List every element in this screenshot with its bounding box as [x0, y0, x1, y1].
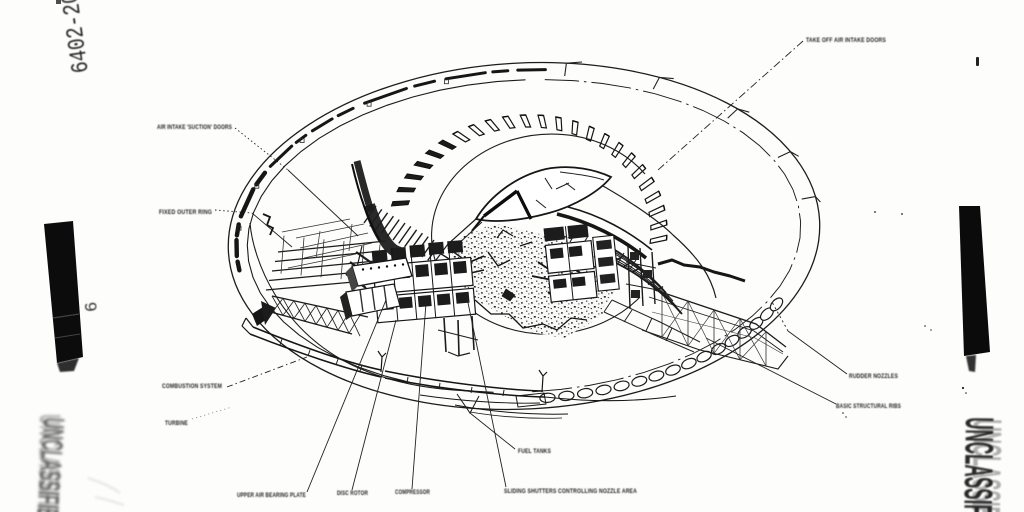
- svg-text:AIR INTAKE 'SUCTION' DOORS: AIR INTAKE 'SUCTION' DOORS: [157, 124, 232, 131]
- svg-text:DISC ROTOR: DISC ROTOR: [337, 490, 368, 497]
- svg-text:RUDDER NOZZLES: RUDDER NOZZLES: [849, 373, 898, 380]
- svg-text:COMBUSTION SYSTEM: COMBUSTION SYSTEM: [162, 383, 222, 390]
- svg-text:FUEL TANKS: FUEL TANKS: [518, 448, 551, 455]
- svg-text:BASIC STRUCTURAL RIBS: BASIC STRUCTURAL RIBS: [836, 403, 901, 410]
- svg-text:TAKE OFF AIR INTAKE DOORS: TAKE OFF AIR INTAKE DOORS: [806, 37, 886, 44]
- svg-text:COMPRESSOR: COMPRESSOR: [395, 489, 430, 496]
- svg-text:UNCLASSIFIED: UNCLASSIFIED: [31, 414, 66, 512]
- svg-text:SLIDING SHUTTERS CONTROLLING N: SLIDING SHUTTERS CONTROLLING NOZZLE AREA: [504, 488, 637, 495]
- svg-text:6: 6: [81, 301, 101, 312]
- svg-text:TURBINE: TURBINE: [165, 420, 188, 427]
- svg-text:UPPER AIR BEARING PLATE: UPPER AIR BEARING PLATE: [237, 492, 306, 499]
- svg-text:FIXED OUTER RING: FIXED OUTER RING: [159, 209, 212, 216]
- svg-text:UNCLASSIFIED: UNCLASSIFIED: [963, 419, 1009, 512]
